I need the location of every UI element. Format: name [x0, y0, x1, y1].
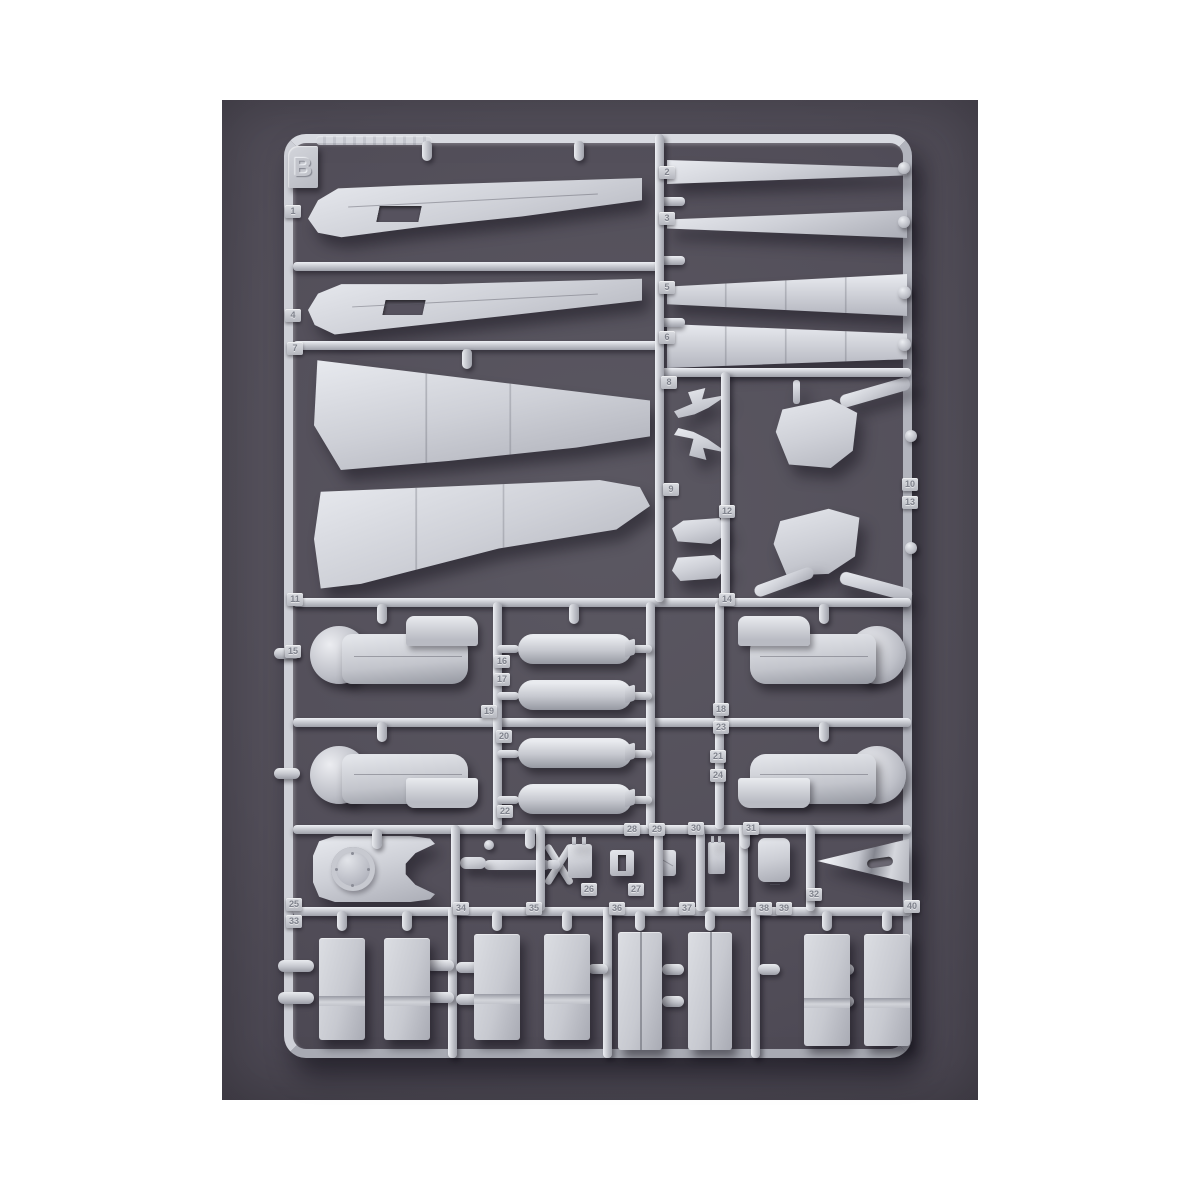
sprue-gate-stub	[705, 911, 715, 931]
part-number-tag-10: 10	[902, 478, 918, 491]
access-door-hook	[770, 884, 780, 885]
gate-boss-pill	[632, 692, 652, 700]
nacelle-4-intake	[738, 778, 810, 808]
leading-edge-strip-b	[667, 210, 907, 238]
sprue-gate-stub	[635, 911, 645, 931]
part-number-tag-12: 12	[719, 505, 735, 518]
cowling-bolt-1	[351, 852, 354, 855]
hatch-slot	[618, 855, 626, 871]
gate-boss-pill	[497, 796, 519, 804]
part-number-tag-11: 11	[287, 593, 303, 606]
landing-gear-door-7	[804, 934, 850, 1046]
sprue-gate-stub	[819, 604, 829, 624]
outer-wing-panel-b	[314, 480, 650, 598]
tail-fin-half-b-shape	[308, 276, 642, 344]
part-number-tag-35: 35	[526, 902, 542, 915]
round-gate	[898, 286, 911, 299]
runner-rail-horizontal	[293, 907, 911, 916]
part-number-tag-33: 33	[286, 915, 302, 928]
gate-boss-pill	[274, 768, 300, 779]
sprue-gate-stub	[337, 911, 347, 931]
gate-boss-pill	[278, 960, 314, 972]
engine-nacelle-half-4	[730, 734, 906, 810]
hinge-a-shape	[672, 518, 728, 544]
part-number-tag-40: 40	[904, 900, 920, 913]
sprue-gate-stub	[372, 829, 382, 849]
sprue-gate-stub	[377, 722, 387, 742]
gate-boss-pill	[497, 692, 519, 700]
landing-gear-door-4	[544, 934, 590, 1040]
gate-boss-pill	[632, 796, 652, 804]
hinge-plate-b	[672, 555, 728, 581]
molding-code-emboss	[316, 136, 432, 145]
box-a-pin-2	[582, 837, 586, 845]
round-gate	[905, 542, 917, 554]
nacelle-3-intake	[738, 616, 810, 646]
part-number-tag-8: 8	[661, 376, 677, 389]
landing-gear-door-2	[384, 938, 430, 1040]
gate-boss-pill	[632, 645, 652, 653]
part-number-tag-13: 13	[902, 496, 918, 509]
part-number-tag-36: 36	[609, 902, 625, 915]
part-number-tag-27: 27	[628, 883, 644, 896]
nacelle-4-seam	[760, 774, 868, 775]
gate-boss-pill	[662, 964, 684, 975]
sprue-gate-stub	[882, 911, 892, 931]
gate-boss-pill	[588, 964, 608, 974]
outer-wing-panel-a	[314, 358, 650, 470]
part-number-tag-19: 19	[481, 705, 497, 718]
fin-a-panel-line	[348, 193, 598, 207]
strip-b-shape	[667, 210, 907, 238]
landing-gear-door-5	[618, 932, 662, 1050]
sprue-gate-stub	[562, 911, 572, 931]
flap-a-shape	[667, 274, 907, 316]
runner-rail-vertical	[451, 825, 460, 911]
flap-strip-a	[667, 274, 907, 316]
nose-cone-shape	[817, 838, 909, 884]
landing-gear-door-8	[864, 934, 910, 1046]
part-number-tag-28: 28	[624, 823, 640, 836]
nose-cone	[817, 838, 909, 884]
runner-rail-horizontal	[293, 262, 659, 271]
outer-wing-panel-b-shape	[314, 480, 650, 598]
sprue-gate-stub	[462, 349, 472, 369]
gate-boss-pill	[278, 992, 314, 1004]
engine-nacelle-half-2	[310, 734, 492, 810]
part-number-tag-34: 34	[453, 902, 469, 915]
part-number-tag-16: 16	[494, 655, 510, 668]
engine-nacelle-half-1	[310, 614, 492, 690]
part-number-tag-22: 22	[497, 805, 513, 818]
sprue-gate-stub	[525, 829, 535, 849]
part-number-tag-39: 39	[776, 902, 792, 915]
fin-a-cutout	[376, 206, 421, 222]
leading-edge-strip-a	[667, 160, 907, 184]
hinge-plate-a	[672, 518, 728, 544]
gate-boss-pill	[497, 645, 519, 653]
part-number-tag-31: 31	[743, 822, 759, 835]
nacelle-1-seam	[354, 656, 462, 657]
part-number-tag-3: 3	[659, 212, 675, 225]
sprue-gate-stub	[377, 604, 387, 624]
round-gate	[898, 216, 910, 228]
round-gate	[898, 338, 911, 351]
runner-rail-vertical	[696, 825, 705, 911]
drop-tank-half-2	[518, 680, 632, 710]
runner-rail-vertical	[721, 372, 730, 602]
wing-center-section-a	[747, 380, 907, 490]
arrow-b-shape	[674, 428, 728, 460]
fitting-pill	[460, 857, 486, 869]
tail-fin-half-b	[308, 276, 642, 344]
wc-a-body-shape	[767, 394, 877, 480]
sprue-gate-stub	[422, 141, 432, 161]
strip-a-shape	[667, 160, 907, 184]
sprue-gate-stub	[574, 141, 584, 161]
round-gate	[905, 430, 917, 442]
landing-gear-door-6	[688, 932, 732, 1050]
cowling-bolt-4	[351, 884, 354, 887]
gate-boss-pill	[497, 750, 519, 758]
nacelle-3-seam	[760, 656, 868, 657]
part-number-tag-7: 7	[287, 342, 303, 355]
gate-boss-pill	[758, 964, 780, 975]
runner-rail-vertical	[536, 825, 545, 911]
drop-tank-half-3	[518, 738, 632, 768]
part-number-tag-32: 32	[806, 888, 822, 901]
nacelle-2-seam	[354, 774, 462, 775]
tail-fin-half-a	[308, 178, 642, 252]
hinge-b-shape	[672, 555, 728, 581]
part-number-tag-29: 29	[649, 823, 665, 836]
sprue-gate-stub	[819, 722, 829, 742]
cowling-bolt-3	[367, 868, 370, 871]
page-canvas: B	[0, 0, 1200, 1200]
sprue-photo: B	[222, 100, 978, 1100]
access-door	[758, 838, 790, 882]
box-a-pin-1	[572, 837, 576, 845]
gate-boss-pill	[662, 996, 684, 1007]
gate-boss-pill	[426, 992, 454, 1003]
equipment-box-b	[708, 842, 725, 874]
prop-spinner	[548, 860, 560, 869]
engine-nacelle-half-3	[730, 614, 906, 690]
runner-rail-horizontal	[293, 825, 911, 834]
runner-rail-horizontal	[659, 368, 911, 377]
arrow-a-shape	[674, 388, 728, 418]
part-number-tag-18: 18	[713, 703, 729, 716]
folded-arrow-bracket-b	[674, 428, 728, 460]
sprue-gate-stub	[569, 604, 579, 624]
part-number-tag-30: 30	[688, 822, 704, 835]
part-number-tag-21: 21	[710, 750, 726, 763]
flap-strip-b	[667, 324, 907, 368]
runner-rail-vertical	[646, 602, 655, 829]
wc-a-body	[767, 394, 877, 480]
equipment-box-a	[568, 844, 592, 878]
sprue-gate-stub	[402, 911, 412, 931]
gate-boss-pill	[426, 960, 454, 971]
tail-fin-half-a-shape	[308, 178, 642, 252]
part-number-tag-2: 2	[659, 166, 675, 179]
part-number-tag-6: 6	[659, 331, 675, 344]
part-number-tag-4: 4	[285, 309, 301, 322]
part-number-tag-25: 25	[286, 898, 302, 911]
runner-rail-vertical	[654, 825, 663, 911]
hatch-plate	[610, 850, 634, 876]
runner-rail-vertical	[448, 907, 457, 1058]
part-number-tag-38: 38	[756, 902, 772, 915]
nacelle-2-aft	[406, 778, 478, 808]
box-b-pin-2	[718, 836, 721, 843]
nacelle-1-aft	[406, 616, 478, 646]
landing-gear-door-3	[474, 934, 520, 1040]
runner-rail-horizontal	[293, 341, 659, 350]
drop-tank-half-1	[518, 634, 632, 664]
part-number-tag-5: 5	[659, 281, 675, 294]
flap-b-shape	[667, 324, 907, 368]
runner-rail-vertical	[603, 907, 612, 1058]
landing-gear-door-1	[319, 938, 365, 1040]
round-gate	[484, 840, 494, 850]
folded-arrow-bracket-a	[674, 388, 728, 418]
outer-wing-panel-a-shape	[314, 358, 650, 470]
runner-rail-vertical	[751, 907, 760, 1058]
sprue-gate-stub	[492, 911, 502, 931]
runner-rail-vertical	[655, 134, 664, 602]
part-number-tag-15: 15	[285, 645, 301, 658]
box-b-pin-1	[711, 836, 714, 843]
part-number-tag-24: 24	[710, 769, 726, 782]
wing-center-section-b	[747, 492, 907, 604]
drop-tank-half-4	[518, 784, 632, 814]
part-number-tag-23: 23	[713, 721, 729, 734]
part-number-tag-14: 14	[719, 593, 735, 606]
part-number-tag-20: 20	[496, 730, 512, 743]
cowling-bolt-2	[335, 868, 338, 871]
part-number-tag-9: 9	[663, 483, 679, 496]
gate-boss-pill	[632, 750, 652, 758]
part-number-tag-37: 37	[679, 902, 695, 915]
part-number-tag-26: 26	[581, 883, 597, 896]
round-gate	[898, 162, 910, 174]
sprue-gate-stub	[822, 911, 832, 931]
part-number-tag-1: 1	[285, 205, 301, 218]
part-number-tag-17: 17	[494, 673, 510, 686]
